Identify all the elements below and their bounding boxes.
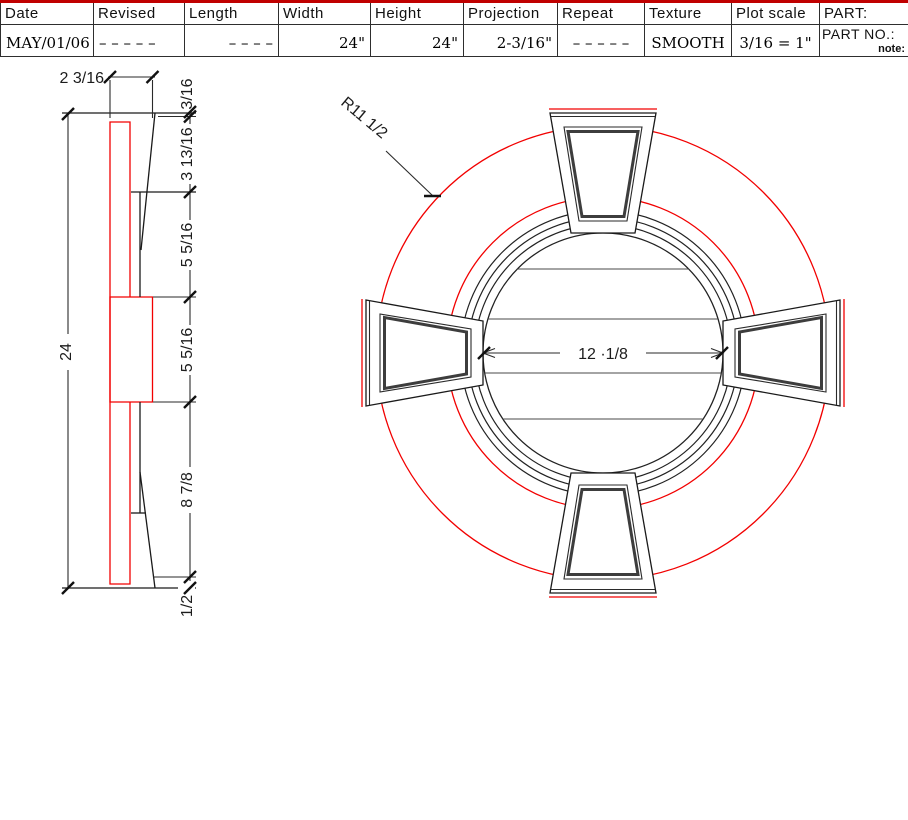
- dim-top-width: 2 3/16: [60, 70, 159, 118]
- dim-face-label: 3 13/16: [179, 127, 196, 180]
- value-texture: SMOOTH: [645, 25, 732, 56]
- col-header-texture: Texture: [645, 3, 732, 25]
- value-part: PART NO.: note:: [820, 25, 908, 56]
- value-projection: 2-3/16": [464, 25, 558, 56]
- dim-overall-height-label: 24: [58, 343, 75, 361]
- dim-radius-label: R11 1/2: [337, 94, 390, 142]
- col-header-width: Width: [279, 3, 371, 25]
- value-date: MAY/01/06: [1, 25, 94, 56]
- col-header-repeat: Repeat: [558, 3, 645, 25]
- value-width: 24": [279, 25, 371, 56]
- dim-chain-right: 3/16 3 13/16 5 5/16 5 5/16 8 7/8 1/2: [178, 74, 196, 629]
- dim-upper-mid-label: 5 5/16: [179, 223, 196, 268]
- keystone-left: [362, 299, 483, 407]
- dim-radius: R11 1/2: [337, 94, 441, 196]
- dim-lower-label: 8 7/8: [179, 472, 196, 508]
- keystone-right: [723, 299, 844, 407]
- col-header-length: Length: [185, 3, 279, 25]
- drawing-canvas: 24 2 3/16: [0, 0, 908, 744]
- side-backplate-outline: [110, 122, 130, 584]
- value-height: 24": [371, 25, 464, 56]
- col-header-revised: Revised: [94, 3, 185, 25]
- cad-drawing-screen: 24 2 3/16: [0, 0, 908, 820]
- dim-bottom-label: 1/2: [179, 595, 196, 617]
- col-header-part: PART:: [820, 3, 908, 25]
- dim-center-width-label: 12 ·1/8: [578, 346, 628, 363]
- part-no-label: PART NO.:: [822, 26, 906, 42]
- side-keystone-bump-outline: [110, 297, 153, 402]
- side-face-taper-bottom: [140, 472, 155, 588]
- col-header-date: Date: [1, 3, 94, 25]
- value-repeat: – – – – –: [558, 25, 645, 56]
- keystone-bottom: [549, 473, 657, 597]
- front-view: 12 ·1/8 R11 1/2: [337, 94, 844, 597]
- dim-edge-label: 3/16: [179, 78, 196, 109]
- note-label: note:: [878, 43, 905, 55]
- keystone-top: [549, 109, 657, 233]
- side-view: 24 2 3/16: [58, 70, 196, 629]
- side-face-taper-top: [141, 113, 155, 250]
- dim-lower-mid-label: 5 5/16: [179, 328, 196, 373]
- value-revised: – – – – –: [94, 25, 185, 56]
- title-block: Date Revised Length Width Height Project…: [0, 0, 908, 57]
- col-header-height: Height: [371, 3, 464, 25]
- value-length: – – – –: [185, 25, 279, 56]
- col-header-projection: Projection: [464, 3, 558, 25]
- title-block-table: Date Revised Length Width Height Project…: [0, 3, 908, 57]
- dim-top-width-label: 2 3/16: [60, 70, 105, 87]
- value-plot-scale: 3/16 = 1": [732, 25, 820, 56]
- col-header-plot-scale: Plot scale: [732, 3, 820, 25]
- dim-overall-height: 24: [58, 108, 75, 594]
